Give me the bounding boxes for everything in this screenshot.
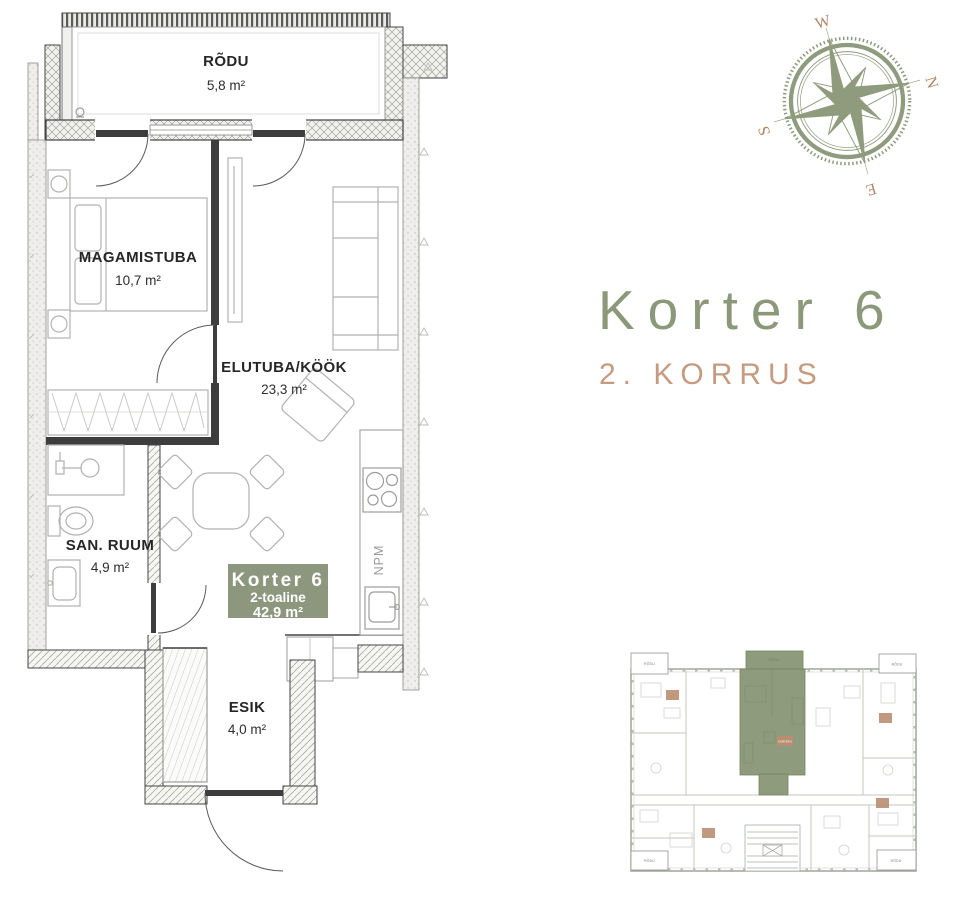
svg-text:RÕDU: RÕDU bbox=[644, 661, 655, 666]
appliance-label: NPM bbox=[372, 545, 386, 576]
entry-wall-right bbox=[283, 786, 317, 804]
shower bbox=[48, 445, 124, 495]
room-area-sanruum: 4,9 m² bbox=[91, 560, 130, 575]
room-area-rodu: 5,8 m² bbox=[207, 78, 246, 93]
room-name-esik: ESIK bbox=[229, 699, 266, 716]
svg-text:RÕDU: RÕDU bbox=[892, 662, 903, 667]
badge-type: 2-toaline bbox=[250, 590, 306, 605]
svg-text:RÕDU: RÕDU bbox=[891, 858, 902, 863]
page-title: Korter 6 bbox=[598, 278, 898, 342]
room-area-elutuba: 23,3 m² bbox=[261, 382, 307, 397]
sofa bbox=[333, 187, 398, 350]
compass-letter-w: W bbox=[813, 12, 833, 33]
outer-wall-left-top bbox=[28, 63, 38, 140]
furniture bbox=[48, 108, 403, 782]
bath-bottom-wall bbox=[28, 650, 162, 668]
partition-wall bbox=[211, 140, 219, 437]
compass-letter-n: N bbox=[921, 75, 941, 91]
title-block: Korter 6 2. KORRUS bbox=[598, 278, 898, 392]
hall-left-wall bbox=[145, 650, 163, 790]
svg-text:RÕDU: RÕDU bbox=[644, 858, 655, 863]
living-balcony-door bbox=[253, 130, 305, 137]
bedroom-wardrobe bbox=[48, 390, 208, 435]
entry-wall-left bbox=[145, 786, 207, 804]
dining-chairs bbox=[157, 454, 286, 553]
balcony-right-wall bbox=[385, 27, 403, 120]
bathroom-door bbox=[151, 583, 156, 633]
compass-letter-e: E bbox=[864, 179, 878, 196]
room-area-esik: 4,0 m² bbox=[228, 722, 267, 737]
outer-wall-right bbox=[403, 78, 419, 690]
building-overview: RÕDU KORTER 6 RÕDU RÕDU RÕDU RÕDU bbox=[626, 648, 924, 878]
page: RÕDU 5,8 m² MAGAMISTUBA 10,7 m² ELUTUBA/… bbox=[0, 0, 964, 900]
floor-plan: RÕDU 5,8 m² MAGAMISTUBA 10,7 m² ELUTUBA/… bbox=[0, 0, 470, 900]
apartment-badge: Korter 6 2-toaline 42,9 m² bbox=[228, 564, 328, 621]
badge-name: Korter 6 bbox=[232, 570, 325, 591]
bedroom-balcony-door bbox=[96, 130, 148, 137]
armchair bbox=[280, 367, 356, 443]
entry-door bbox=[205, 790, 283, 796]
highlighted-unit: RÕDU KORTER 6 bbox=[740, 651, 805, 795]
tv-unit bbox=[228, 158, 242, 322]
compass-star bbox=[753, 7, 941, 195]
minimap-unit-label: KORTER 6 bbox=[778, 740, 792, 744]
right-stub-wall bbox=[403, 45, 447, 78]
hall-right-wall bbox=[290, 660, 315, 786]
stairwell bbox=[745, 825, 800, 871]
bedroom-bath-wall bbox=[46, 437, 219, 445]
bathroom-sink bbox=[48, 560, 80, 606]
balcony-railing bbox=[62, 13, 390, 27]
bedroom-door bbox=[213, 325, 217, 383]
dining-table bbox=[193, 473, 249, 529]
badge-area: 42,9 m² bbox=[253, 605, 303, 621]
nightstands bbox=[48, 170, 70, 338]
room-name-rodu: RÕDU bbox=[203, 52, 249, 70]
page-subtitle: 2. KORRUS bbox=[599, 358, 898, 392]
room-name-elutuba: ELUTUBA/KÖÖK bbox=[221, 359, 347, 376]
balcony-floor bbox=[72, 27, 385, 120]
balcony-left-rail bbox=[62, 27, 72, 120]
room-name-magamistuba: MAGAMISTUBA bbox=[79, 249, 198, 266]
compass-letter-s: S bbox=[755, 124, 774, 137]
room-name-sanruum: SAN. RUUM bbox=[66, 537, 155, 554]
room-area-magamistuba: 10,7 m² bbox=[115, 273, 161, 288]
minimap-balcony-label: RÕDU bbox=[769, 657, 780, 662]
outer-wall-left bbox=[28, 140, 46, 668]
living-bottom-wall bbox=[358, 645, 403, 672]
kitchen-counter bbox=[360, 430, 403, 635]
compass-rose: W N E S bbox=[752, 6, 942, 196]
toilet bbox=[48, 506, 93, 536]
hall-wardrobe bbox=[163, 648, 207, 782]
